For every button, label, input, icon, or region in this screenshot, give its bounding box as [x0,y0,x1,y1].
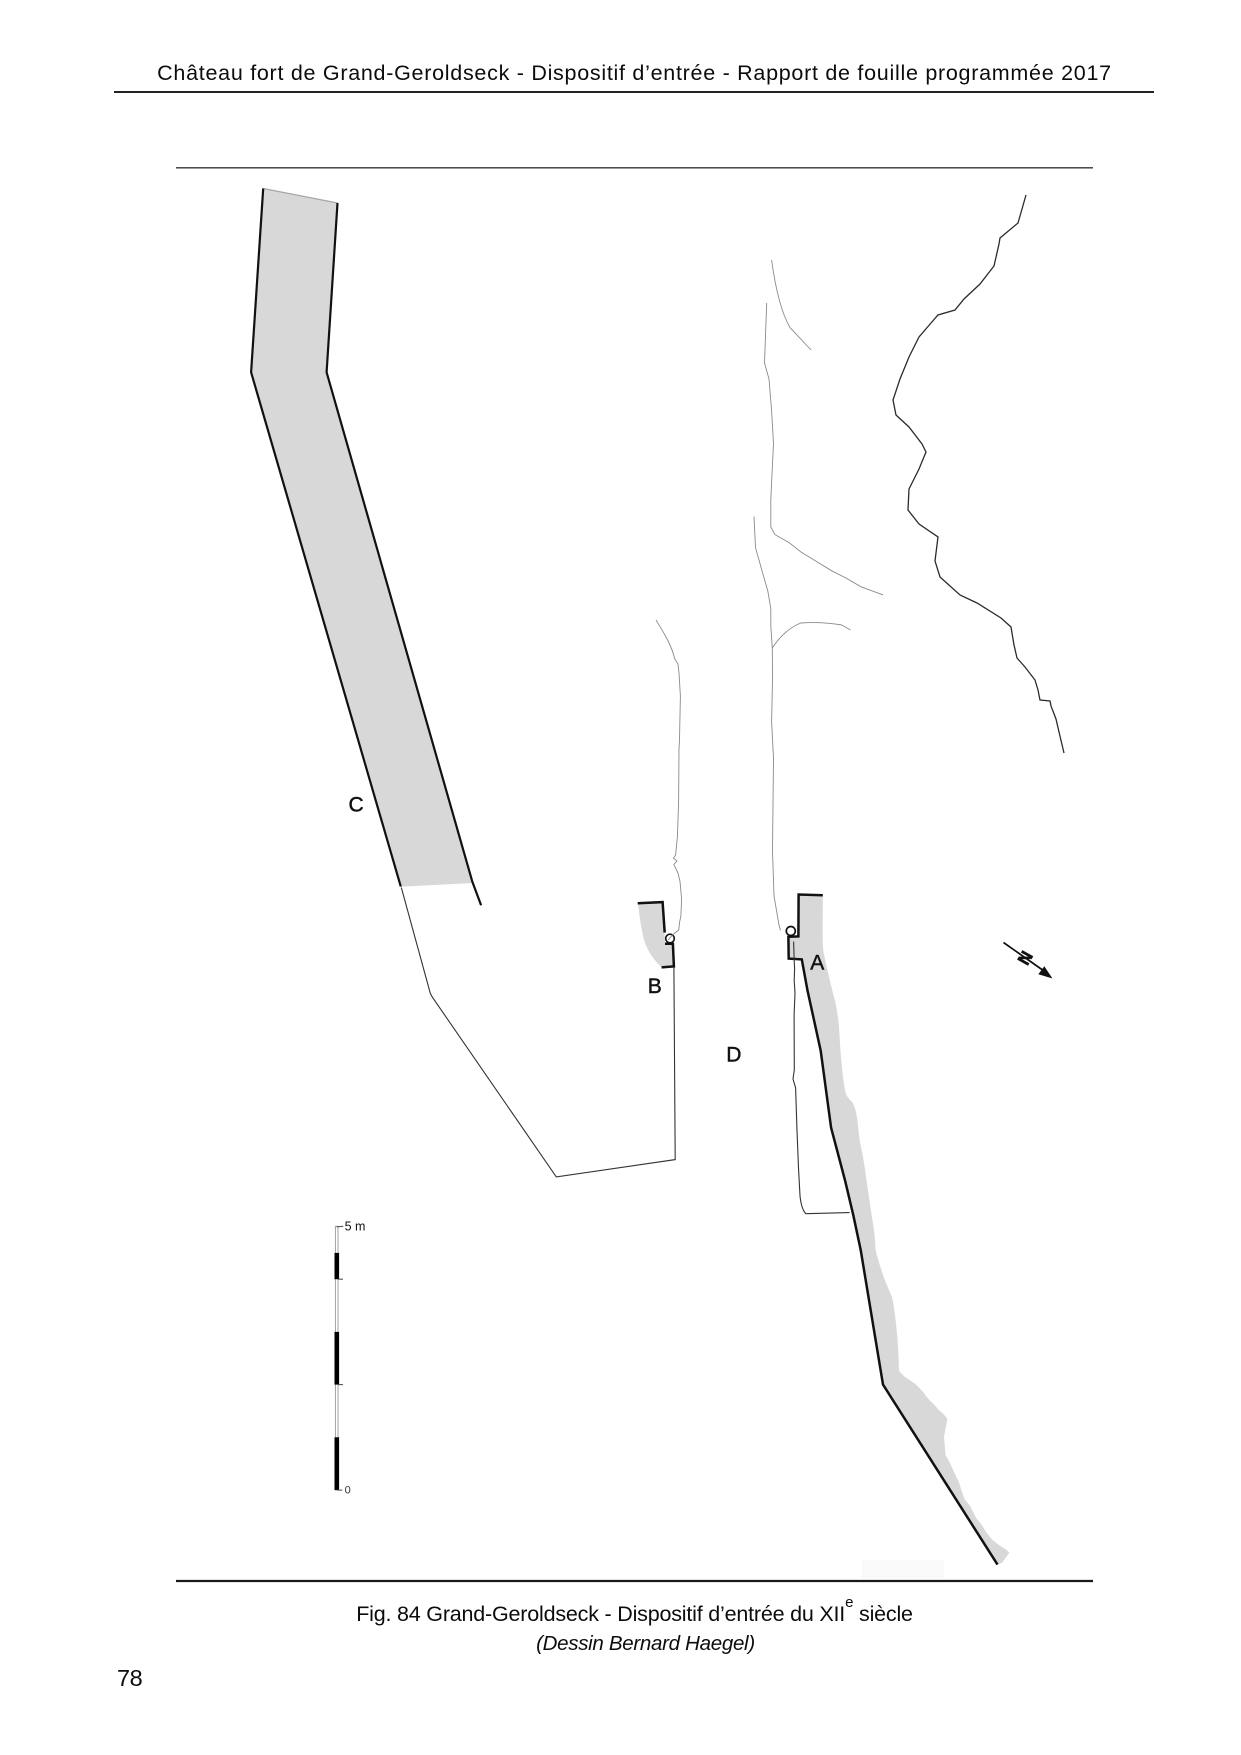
svg-text:0: 0 [345,1485,351,1497]
svg-text:A: A [810,951,824,974]
svg-text:C: C [349,794,364,817]
svg-text:B: B [648,975,662,998]
svg-text:D: D [726,1043,741,1066]
svg-text:N: N [1013,948,1037,969]
svg-text:5 m: 5 m [345,1220,366,1234]
